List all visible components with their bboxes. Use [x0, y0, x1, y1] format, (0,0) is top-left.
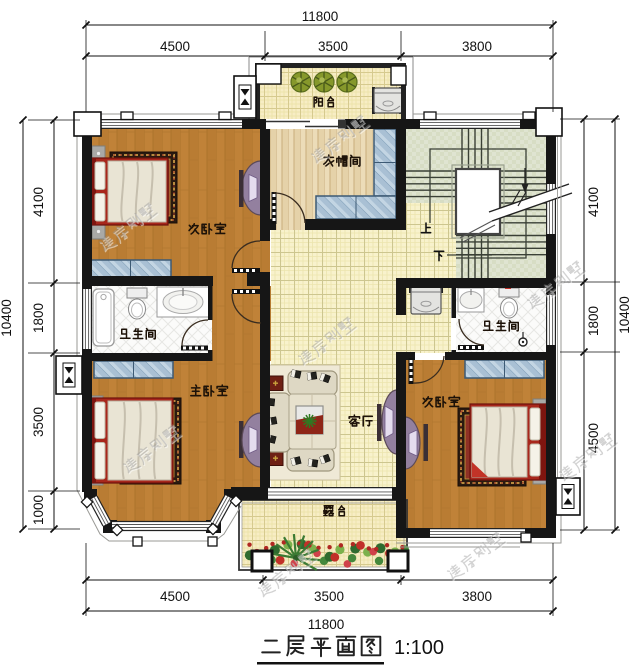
svg-text:1800: 1800 — [586, 306, 601, 336]
svg-text:3800: 3800 — [462, 39, 492, 54]
svg-text:11800: 11800 — [302, 9, 339, 24]
svg-text:4100: 4100 — [31, 187, 46, 217]
svg-text:1000: 1000 — [31, 495, 46, 525]
svg-text:3800: 3800 — [462, 589, 492, 604]
svg-text:4100: 4100 — [586, 187, 601, 217]
svg-text:3500: 3500 — [318, 39, 348, 54]
svg-text:10400: 10400 — [617, 296, 632, 334]
svg-text:4500: 4500 — [160, 589, 190, 604]
svg-text:1:100: 1:100 — [394, 637, 444, 659]
svg-text:3500: 3500 — [314, 589, 344, 604]
svg-text:4500: 4500 — [160, 39, 190, 54]
svg-text:11800: 11800 — [308, 617, 345, 632]
svg-text:1800: 1800 — [31, 303, 46, 333]
svg-text:3500: 3500 — [31, 407, 46, 437]
svg-text:10400: 10400 — [0, 299, 14, 337]
